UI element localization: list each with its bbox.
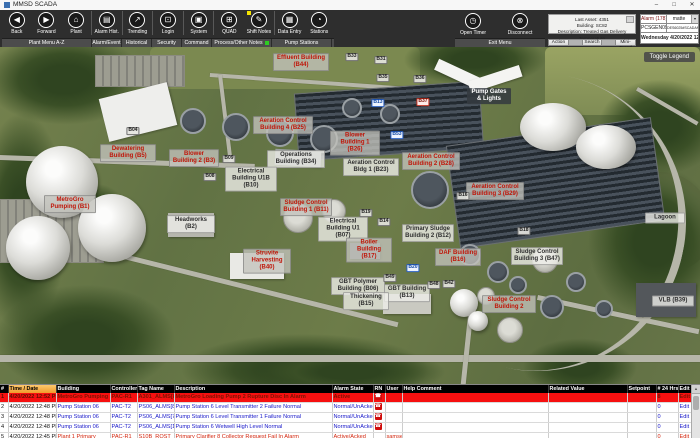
map-terrain-dome (576, 125, 636, 169)
map-label-sludge-control-building-2[interactable]: Sludge Control Building 2 (482, 295, 536, 313)
trending-icon: ↗ (129, 12, 145, 28)
cell-alarm-state: Normal/UnAcked (332, 412, 373, 422)
scrollbar-thumb[interactable] (693, 396, 699, 410)
map-label-struvite-harvesting-b40[interactable]: Struvite Harvesting (B40) (243, 249, 291, 274)
cell-related-value (548, 422, 627, 432)
toolbar-button-label-login: Login (162, 29, 174, 35)
map-label-b37[interactable]: B37 (416, 98, 429, 106)
map-label-b14[interactable]: B14 (377, 218, 390, 226)
map-label-b42[interactable]: B42 (442, 280, 455, 288)
cell-user (385, 393, 402, 402)
chevron-down-icon: ▾ (691, 15, 698, 23)
map-label-b09[interactable]: B09 (222, 155, 235, 163)
map-label-gbt-building-b13[interactable]: GBT Building (B13) (384, 284, 430, 302)
minimize-button[interactable]: – (648, 0, 664, 10)
map-label-blower-building-2-b3[interactable]: Blower Building 2 (B3) (169, 149, 219, 167)
map-terrain-trees (0, 282, 180, 384)
table-header-user[interactable]: User (385, 385, 402, 393)
map-terrain-tank (222, 113, 250, 141)
system-icon: ▣ (191, 12, 207, 28)
exit-menu-label: Exit Menu (455, 38, 545, 47)
cell-: 4 (0, 422, 8, 432)
map-terrain-tank (487, 261, 509, 283)
cell-building: Pump Station 06 (56, 412, 110, 422)
cell-related-value (548, 412, 627, 422)
timer-icon: ◷ (465, 13, 481, 29)
phone-icon: ☎ (375, 393, 382, 400)
cell-help-comment (402, 393, 548, 402)
table-row-4[interactable]: 44/20/2022 12:48 PMPump Station 06PAC-T2… (0, 422, 692, 432)
map-label-b13[interactable]: B13 (371, 99, 384, 107)
open-timer-label: Open Timer (460, 30, 486, 36)
map-label-b49[interactable]: B49 (383, 274, 396, 282)
map-label-pump-gates-lights[interactable]: Pump Gates & Lights (467, 88, 511, 104)
cell-24-hrs: 0 (656, 412, 678, 422)
map-terrain-dome (6, 216, 70, 280)
map-terrain-tank (342, 98, 362, 118)
notes-status-badge (265, 41, 269, 45)
close-button[interactable]: ✕ (684, 0, 700, 10)
table-scrollbar[interactable]: ▲ (691, 385, 700, 438)
toolbar-button-label-system: System (190, 29, 207, 35)
disconnect-button[interactable]: ⊗ Disconnect (505, 12, 535, 36)
table-header-alarm-state[interactable]: Alarm State (332, 385, 373, 393)
map-terrain-lot (95, 55, 185, 87)
toolbar-button-back[interactable]: ◀Back (2, 11, 32, 35)
data-entry-icon: ▦ (282, 12, 298, 28)
map-label-daf-building-b16[interactable]: DAF Building (B16) (435, 248, 481, 266)
cell-tag-name: PS06_ALMS[7] (137, 412, 174, 422)
map-label-aeration-control-building-4-b25[interactable]: Aeration Control Building 4 (B25) (253, 116, 313, 134)
maximize-button[interactable]: □ (666, 0, 682, 10)
cell-setpoint (627, 393, 656, 402)
edit-link[interactable]: Edit (678, 432, 692, 438)
cell-tag-name: A301_ALMS[8] (137, 393, 174, 402)
cell-user (385, 422, 402, 432)
cell-alarm-state: Normal/UnAcked (332, 422, 373, 432)
action-slot-1 (569, 39, 582, 46)
shift-notes-pencil-icon: ✎ (251, 12, 267, 28)
cell-alarm-state: Active/Acked (332, 432, 373, 438)
cell-help-comment (402, 412, 548, 422)
toolbar-button-label-quad: QUAD (222, 29, 236, 35)
map-terrain-tank light (497, 317, 523, 343)
alarm-table: #Time / DateBuildingControllerTag NameDe… (0, 384, 700, 438)
toolbar-button-label-forward: Forward (37, 29, 55, 35)
table-row-1[interactable]: 14/20/2022 12:52 PMMetroGro Pumping (B1)… (0, 393, 692, 402)
cell-building: MetroGro Pumping (B1) (56, 393, 110, 402)
cell-: 1 (0, 393, 8, 402)
back-icon: ◀ (9, 12, 25, 28)
cell-: 5 (0, 432, 8, 438)
table-row-3[interactable]: 34/20/2022 12:48 PMPump Station 06PAC-T2… (0, 412, 692, 422)
toolbar-button-label-alarm-hist: Alarm Hist. (95, 29, 119, 35)
alarm-history-icon: ▤ (99, 12, 115, 28)
toolbar-button-stations[interactable]: ◔Stations (304, 11, 334, 35)
cell-24-hrs: 8 (656, 393, 678, 402)
cell-24-hrs: 0 (656, 422, 678, 432)
open-timer-button[interactable]: ◷ Open Timer (458, 12, 488, 36)
toolbar-button-label-back: Back (11, 29, 22, 35)
map-label-b53[interactable]: B53 (390, 131, 403, 139)
table-header-related-value[interactable]: Related Value (548, 385, 627, 393)
cell-description: MetroGro Loading Pump 2 Rupture Disc In … (174, 393, 332, 402)
cell-time-date: 4/20/2022 12:48 PM (8, 402, 56, 412)
map-label-vlb-b39[interactable]: VLB (B39) (652, 296, 694, 307)
toolbar-button-label-plant: Plant (70, 29, 81, 35)
edit-link[interactable]: Edit (678, 412, 692, 422)
map-label-sludge-control-building-1-b11[interactable]: Sludge Control Building 1 (B11) (280, 198, 332, 216)
table-header-edit[interactable]: Edit (678, 385, 692, 393)
map-terrain-tank (509, 276, 527, 294)
cell-tag-name: PS06_ALMS[1] (137, 422, 174, 432)
table-header-setpoint[interactable]: Setpoint (627, 385, 656, 393)
map-label-b19[interactable]: B19 (359, 209, 372, 217)
toolbar-button-shift-notes[interactable]: ✎Shift Notes (244, 11, 274, 35)
cell-controller: PAC-T2 (110, 412, 137, 422)
cell-: 3 (0, 412, 8, 422)
asset-info-more-button[interactable] (626, 16, 634, 23)
toolbar-button-label-trending: Trending (128, 29, 148, 35)
map-terrain-tank (380, 104, 400, 124)
asset-info-box: Last Asset: 4351 Building: SC82 Descript… (548, 14, 636, 34)
table-header-description[interactable]: Description (174, 385, 332, 393)
toolbar: ◀Back▶Forward⌂Plant▤Alarm Hist.↗Trending… (0, 10, 700, 47)
toggle-legend-button[interactable]: Toggle Legend (644, 52, 695, 62)
toolbar-button-data-entry[interactable]: ▦Data Entry (274, 11, 305, 35)
map-terrain-tank (540, 295, 564, 319)
map-label-metrogro-pumping-b1[interactable]: MetroGro Pumping (B1) (44, 195, 96, 213)
table-header-controller[interactable]: Controller (110, 385, 137, 393)
map-terrain-tank (180, 108, 206, 134)
table-row-5[interactable]: 54/20/2022 12:45 PMPlant 1 PrimaryPAC-R1… (0, 432, 692, 438)
cell-controller: PAC-T2 (110, 402, 137, 412)
table-header-24-hrs[interactable]: # 24 Hrs (656, 385, 678, 393)
cell-rn: ☎ (373, 393, 385, 402)
phone-icon: ☎ (375, 423, 382, 430)
stations-icon: ◔ (311, 12, 327, 28)
map-label-aeration-control-building-2-b28[interactable]: Aeration Control Building 2 (B28) (402, 152, 460, 170)
cell-controller: PAC-T2 (110, 422, 137, 432)
map-terrain-tank (595, 300, 613, 318)
map-label-b16[interactable]: B16 (456, 192, 469, 200)
map-label-lagoon[interactable]: Lagoon (645, 213, 685, 224)
cell-tag-name: S10B_RQST_FAIL (137, 432, 174, 438)
map-label-headworks-b2[interactable]: Headworks (B2) (167, 215, 215, 233)
map-terrain-tank (566, 272, 586, 292)
toolbar-button-trending[interactable]: ↗Trending (122, 11, 153, 35)
toolbar-button-system[interactable]: ▣System (183, 11, 214, 35)
map-label-operations-building-b34[interactable]: Operations Building (B34) (267, 150, 325, 168)
cell-: 2 (0, 402, 8, 412)
cell-help-comment (402, 422, 548, 432)
map-label-b35[interactable]: B35 (376, 74, 389, 82)
plant-map: Effluent Building (B44)B33B31B35B36Pump … (0, 47, 700, 384)
map-label-b20[interactable]: B20 (406, 264, 419, 272)
cell-24-hrs: 0 (656, 432, 678, 438)
map-label-aeration-control-building-3-b29[interactable]: Aeration Control Building 3 (B29) (466, 182, 524, 200)
edit-link[interactable]: Edit (678, 393, 692, 402)
cell-related-value (548, 432, 627, 438)
cell-building: Plant 1 Primary (56, 432, 110, 438)
search-button[interactable]: Search (582, 39, 603, 46)
map-label-effluent-building-b44[interactable]: Effluent Building (B44) (273, 53, 329, 71)
cell-user (385, 402, 402, 412)
cell-24-hrs: 0 (656, 402, 678, 412)
map-label-b31[interactable]: B31 (374, 56, 387, 64)
map-label-boiler-building-b17[interactable]: Boiler Building (B17) (346, 238, 392, 263)
alarm-table-grid: #Time / DateBuildingControllerTag NameDe… (0, 385, 693, 438)
toolbar-button-login[interactable]: ⊡Login (152, 11, 183, 35)
cell-help-comment (402, 402, 548, 412)
table-header-help-comment[interactable]: Help Comment (402, 385, 548, 393)
cell-alarm-state: Normal/UnAcked (332, 402, 373, 412)
disconnect-icon: ⊗ (512, 13, 528, 29)
quad-grid-icon: ⊞ (221, 12, 237, 28)
toolbar-button-label-stations: Stations (310, 29, 328, 35)
toolbar-button-plant[interactable]: ⌂Plant (61, 11, 91, 35)
forward-icon: ▶ (38, 12, 54, 28)
cell-setpoint (627, 402, 656, 412)
cell-building: Pump Station 06 (56, 422, 110, 432)
map-label-b48[interactable]: B48 (427, 281, 440, 289)
cell-rn: ☎ (373, 412, 385, 422)
phone-icon: ☎ (375, 413, 382, 420)
cell-description: Pump Station 6 Wetwell High Level Normal (174, 422, 332, 432)
disconnect-label: Disconnect (508, 30, 533, 36)
shift-notes-badge (247, 11, 251, 15)
map-label-thickening-b15[interactable]: Thickening (B15) (343, 292, 389, 310)
action-slot-2 (602, 39, 615, 46)
map-label-b08[interactable]: B08 (203, 173, 216, 181)
table-header-[interactable]: # (0, 385, 8, 393)
cell-user (385, 412, 402, 422)
cell-time-date: 4/20/2022 12:52 PM (8, 393, 56, 402)
table-header-rn[interactable]: RN (373, 385, 385, 393)
toolbar-button-alarm-hist[interactable]: ▤Alarm Hist. (91, 11, 122, 35)
toolbar-buttons: ◀Back▶Forward⌂Plant▤Alarm Hist.↗Trending… (2, 10, 334, 38)
map-label-dewatering-building-b5[interactable]: Dewatering Building (B5) (100, 144, 156, 162)
map-label-b04[interactable]: B04 (126, 127, 139, 135)
cell-controller: PAC-R1 (110, 432, 137, 438)
cell-related-value (548, 402, 627, 412)
map-label-b18[interactable]: B18 (517, 227, 530, 235)
cell-setpoint (627, 432, 656, 438)
cell-controller: PAC-R1 (110, 393, 137, 402)
cell-building: Pump Station 06 (56, 402, 110, 412)
cell-time-date: 4/20/2022 12:45 PM (8, 432, 56, 438)
cell-time-date: 4/20/2022 12:48 PM (8, 412, 56, 422)
map-terrain-tank (411, 171, 449, 209)
asset-action-row: Action Search Mini-Trend (548, 39, 636, 46)
datetime-display: Wednesday 4/20/2022 12:53:28 PM (640, 32, 699, 44)
map-label-primary-sludge-building-2-b12[interactable]: Primary Sludge Building 2 (B12) (402, 224, 454, 242)
cell-description: Primary Clarifier 8 Collector Request Fa… (174, 432, 332, 438)
table-header-time-date[interactable]: Time / Date (8, 385, 56, 393)
mmsd-scada-window: MMSD SCADA – □ ✕ ◀Back▶Forward⌂Plant▤Ala… (0, 0, 700, 438)
plant-home-icon: ⌂ (68, 12, 84, 28)
map-label-aeration-control-bldg-1-b23[interactable]: Aeration Control Bldg 1 (B23) (343, 158, 399, 176)
toolbar-button-label-data-entry: Data Entry (278, 29, 302, 35)
scroll-up-icon: ▲ (692, 385, 700, 394)
edit-link[interactable]: Edit (678, 422, 692, 432)
cell-rn (373, 432, 385, 438)
map-label-sludge-control-building-3-b47[interactable]: Sludge Control Building 3 (B47) (511, 247, 563, 265)
action-button[interactable]: Action (548, 39, 569, 46)
edit-link[interactable]: Edit (678, 402, 692, 412)
toolbar-button-forward[interactable]: ▶Forward (32, 11, 62, 35)
app-icon (4, 2, 10, 8)
map-label-blower-building-1-b26[interactable]: Blower Building 1 (B26) (330, 131, 380, 156)
mini-trend-button[interactable]: Mini-Trend (615, 39, 636, 46)
map-label-b33[interactable]: B33 (345, 53, 358, 61)
cell-rn: ☎ (373, 422, 385, 432)
cell-alarm-state: Active (332, 393, 373, 402)
cell-setpoint (627, 412, 656, 422)
map-label-b36[interactable]: B36 (413, 75, 426, 83)
table-header-tag-name[interactable]: Tag Name (137, 385, 174, 393)
cell-related-value (548, 393, 627, 402)
toolbar-left-group: ◀Back▶Forward⌂Plant▤Alarm Hist.↗Trending… (2, 10, 334, 47)
cell-help-comment (402, 432, 548, 438)
cell-time-date: 4/20/2022 12:48 PM (8, 422, 56, 432)
cell-tag-name: PS06_ALMS[8] (137, 402, 174, 412)
window-title: MMSD SCADA (13, 1, 57, 8)
toolbar-button-quad[interactable]: ⊞QUAD (213, 11, 244, 35)
table-row-2[interactable]: 24/20/2022 12:48 PMPump Station 06PAC-T2… (0, 402, 692, 412)
cell-user: samsed (385, 432, 402, 438)
cell-description: Pump Station 6 Level Transmitter 1 Failu… (174, 412, 332, 422)
toolbar-button-label-shift-notes: Shift Notes (247, 29, 271, 35)
map-label-electrical-building-u1b-b10[interactable]: Electrical Building U1B (B10) (225, 167, 277, 192)
table-header-building[interactable]: Building (56, 385, 110, 393)
login-lock-icon: ⊡ (160, 12, 176, 28)
cell-setpoint (627, 422, 656, 432)
user-name: matte (673, 16, 686, 22)
cell-rn: ☎ (373, 402, 385, 412)
cell-description: Pump Station 6 Level Transmitter 2 Failu… (174, 402, 332, 412)
map-terrain-dome (468, 311, 488, 331)
phone-icon: ☎ (375, 403, 382, 410)
